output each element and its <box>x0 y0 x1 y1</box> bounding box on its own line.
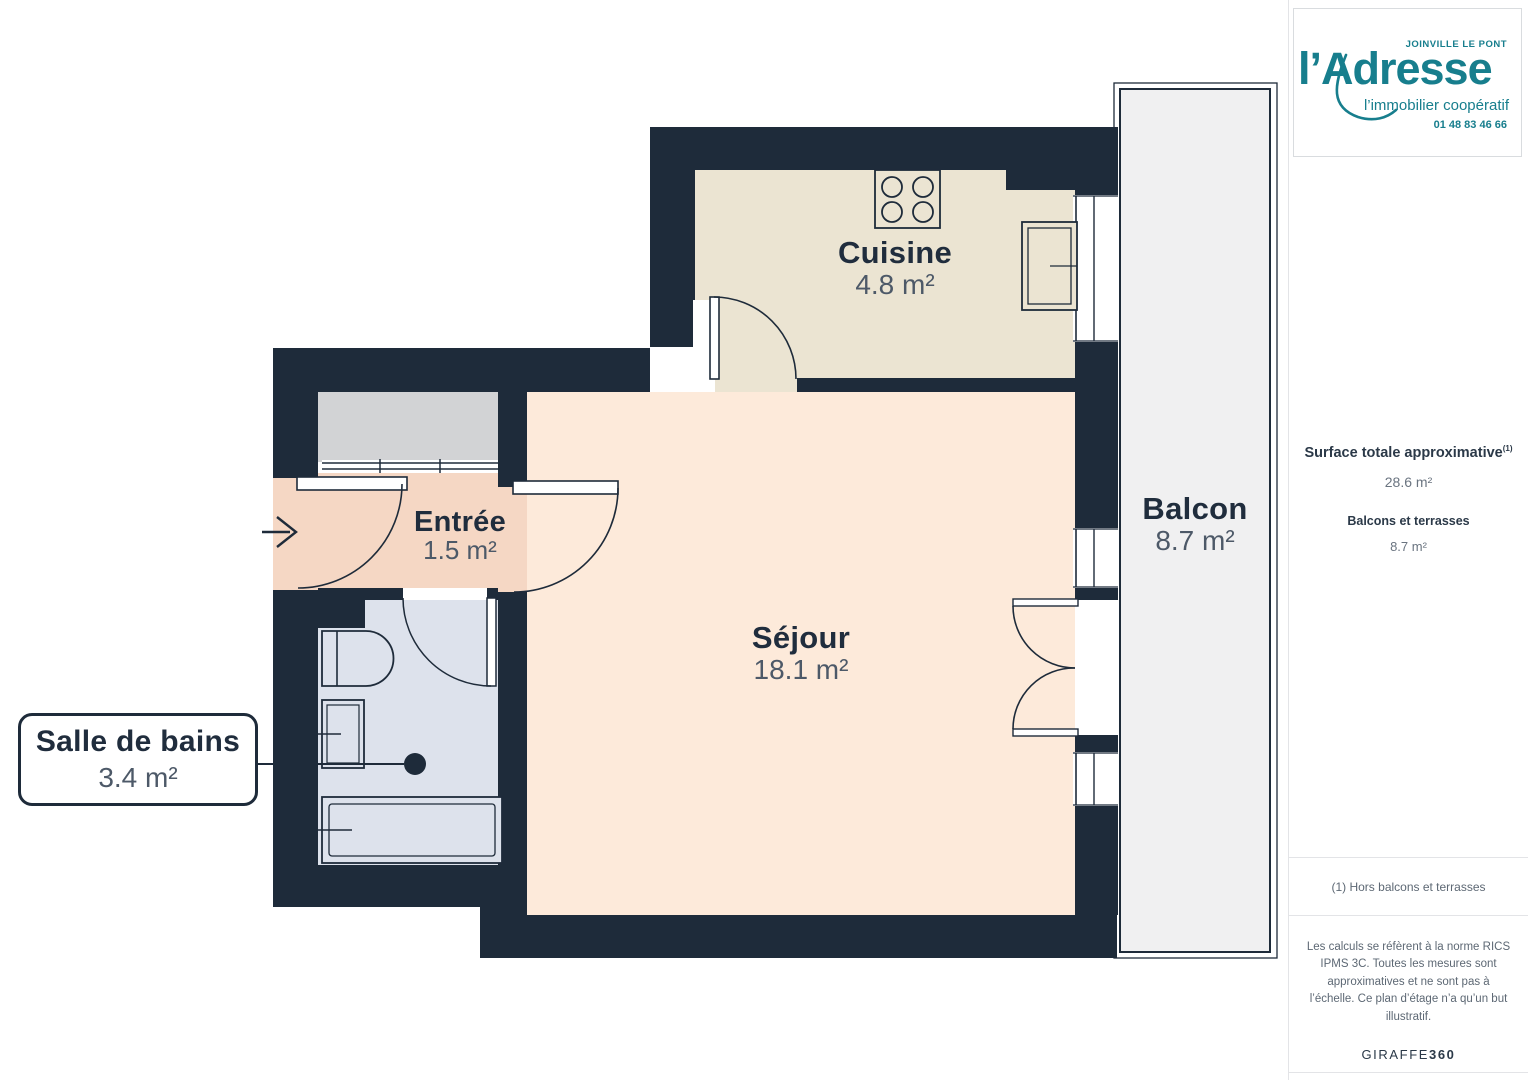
shower-drain-dot <box>404 753 426 775</box>
surface-total-value: 28.6 m² <box>1289 474 1528 490</box>
bathtub-icon <box>318 797 502 863</box>
sejour-area: 18.1 m² <box>752 655 850 684</box>
entree-area: 1.5 m² <box>414 538 506 565</box>
wall-bathroom-corner <box>318 588 365 628</box>
label-salle-de-bains-box: Salle de bains 3.4 m² <box>18 713 258 806</box>
wall-kitchen-right-upper <box>1075 127 1118 195</box>
wall-kitchen-right-lower <box>1075 342 1118 392</box>
wall-sejour-right-1 <box>1075 392 1118 528</box>
cuisine-area: 4.8 m² <box>838 270 952 299</box>
wall-left-upper <box>273 348 318 478</box>
toilet-icon <box>322 631 394 686</box>
logo-brand: l’Adresse <box>1298 43 1492 95</box>
wall-bathroom-bottom <box>273 865 480 907</box>
notes-section: Les calculs se réfèrent à la norme RICS … <box>1289 916 1528 1073</box>
surface-total-title: Surface totale approximative(1) <box>1289 444 1528 461</box>
wall-sejour-right-3 <box>1075 735 1118 752</box>
wall-sejour-top-right <box>797 378 1075 392</box>
wall-closet-sejour <box>498 392 527 487</box>
sink-icon <box>318 700 364 768</box>
label-cuisine: Cuisine 4.8 m² <box>838 237 952 299</box>
balcons-terrasses-title: Balcons et terrasses <box>1289 514 1528 528</box>
surface-total-footnote-ref: (1) <box>1503 444 1513 453</box>
logo-tagline: l’immobilier coopératif <box>1364 97 1509 114</box>
wall-sejour-top-left <box>505 378 650 392</box>
giraffe-360: 360 <box>1429 1047 1456 1062</box>
closet-sliding-door <box>322 459 498 473</box>
wall-kitchen-notch <box>1006 170 1075 190</box>
floorplan-drawing <box>0 0 1288 1080</box>
giraffe360-logo: GIRAFFE360 <box>1289 1047 1528 1062</box>
disclaimer-text: Les calculs se réfèrent à la norme RICS … <box>1305 939 1513 1026</box>
balcons-terrasses-value: 8.7 m² <box>1289 539 1528 554</box>
wall-sejour-right-2 <box>1075 588 1118 600</box>
wall-kitchen-top <box>650 127 1118 170</box>
french-door-leaf-bottom <box>1013 729 1078 736</box>
cuisine-doorway-floor <box>715 378 797 392</box>
salle-de-bains-name: Salle de bains <box>36 725 240 759</box>
wall-left-lower <box>273 590 318 907</box>
info-sidebar: JOINVILLE LE PONT l’Adresse l’immobilier… <box>1288 0 1528 1080</box>
salle-de-bains-area: 3.4 m² <box>98 762 177 794</box>
label-balcon: Balcon 8.7 m² <box>1142 493 1247 555</box>
footnote: (1) Hors balcons et terrasses <box>1289 857 1528 916</box>
label-entree: Entrée 1.5 m² <box>414 507 506 565</box>
entree-name: Entrée <box>414 507 506 537</box>
floorplan-page: Cuisine 4.8 m² Entrée 1.5 m² Séjour 18.1… <box>0 0 1528 1080</box>
kitchen-appliance-icon <box>1022 222 1077 310</box>
cuisine-name: Cuisine <box>838 237 952 270</box>
sejour-window-upper <box>1073 528 1118 588</box>
giraffe-text: GIRAFFE <box>1361 1047 1429 1062</box>
floorplan-canvas: Cuisine 4.8 m² Entrée 1.5 m² Séjour 18.1… <box>0 0 1288 1080</box>
balcon-area: 8.7 m² <box>1142 526 1247 555</box>
sejour-window-lower <box>1073 752 1118 806</box>
wall-sejour-right-4 <box>1075 806 1118 915</box>
sejour-name: Séjour <box>752 622 850 655</box>
label-sejour: Séjour 18.1 m² <box>752 622 850 684</box>
surface-summary: Surface totale approximative(1) 28.6 m² … <box>1289 444 1528 554</box>
balcon-name: Balcon <box>1142 493 1247 526</box>
wall-bottom <box>480 915 1117 958</box>
closet-floor <box>318 392 498 462</box>
french-door-leaf-top <box>1013 599 1078 606</box>
agency-logo: JOINVILLE LE PONT l’Adresse l’immobilier… <box>1293 8 1522 157</box>
stove-icon <box>875 170 940 228</box>
logo-phone: 01 48 83 46 66 <box>1434 119 1507 131</box>
kitchen-balcony-window <box>1073 195 1118 342</box>
surface-total-label: Surface totale approximative <box>1304 445 1502 461</box>
wall-kitchen-left <box>650 127 695 347</box>
